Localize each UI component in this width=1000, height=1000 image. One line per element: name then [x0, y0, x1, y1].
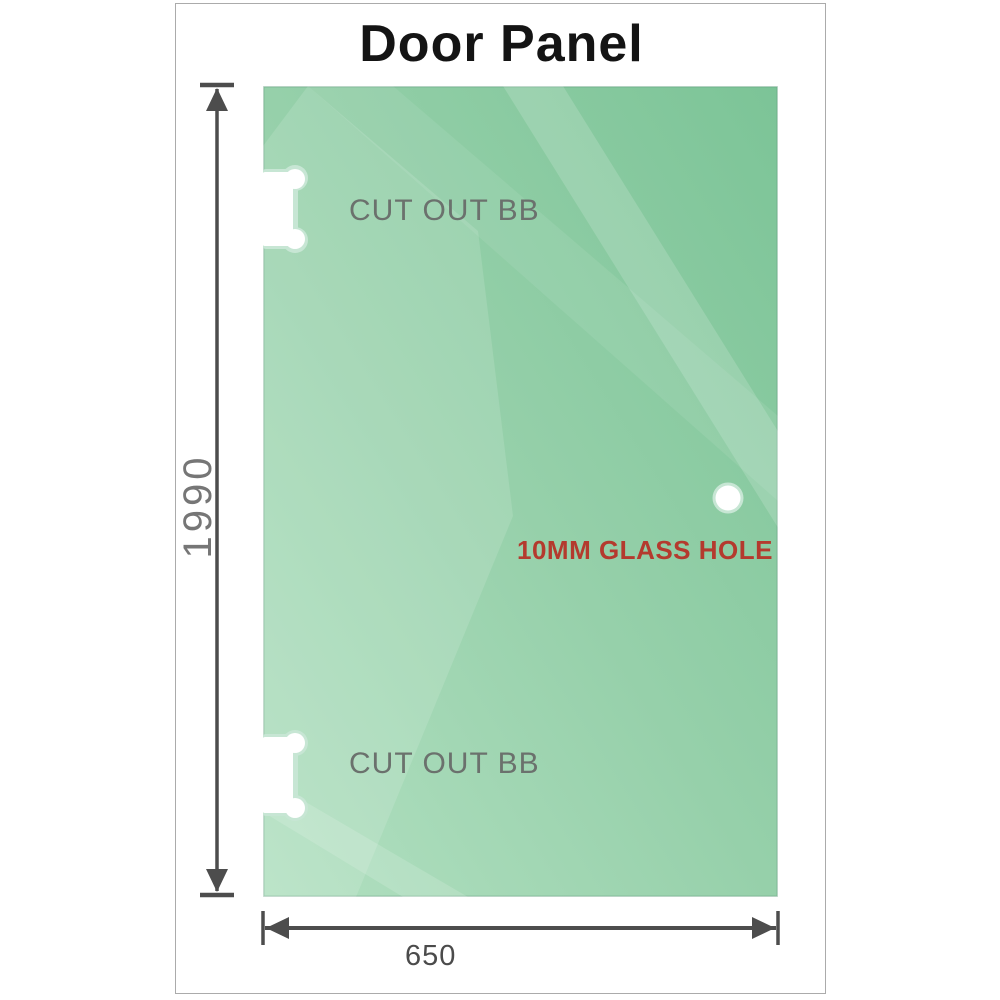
- glass-hole-icon: [713, 483, 744, 514]
- door-panel-diagram: Door Panel: [0, 0, 1000, 1000]
- arrow-up-icon: [206, 88, 228, 111]
- cutout-top-label: CUT OUT BB: [349, 196, 540, 226]
- arrow-right-icon: [752, 917, 775, 939]
- width-dimension-line: [258, 907, 784, 949]
- page-title: Door Panel: [175, 16, 828, 73]
- height-dimension-value: 1990: [178, 454, 218, 559]
- glass-hole-label: 10MM GLASS HOLE: [517, 537, 773, 563]
- cutout-bottom-label: CUT OUT BB: [349, 749, 540, 779]
- width-dimension-value: 650: [405, 942, 456, 971]
- arrow-left-icon: [266, 917, 289, 939]
- arrow-down-icon: [206, 869, 228, 892]
